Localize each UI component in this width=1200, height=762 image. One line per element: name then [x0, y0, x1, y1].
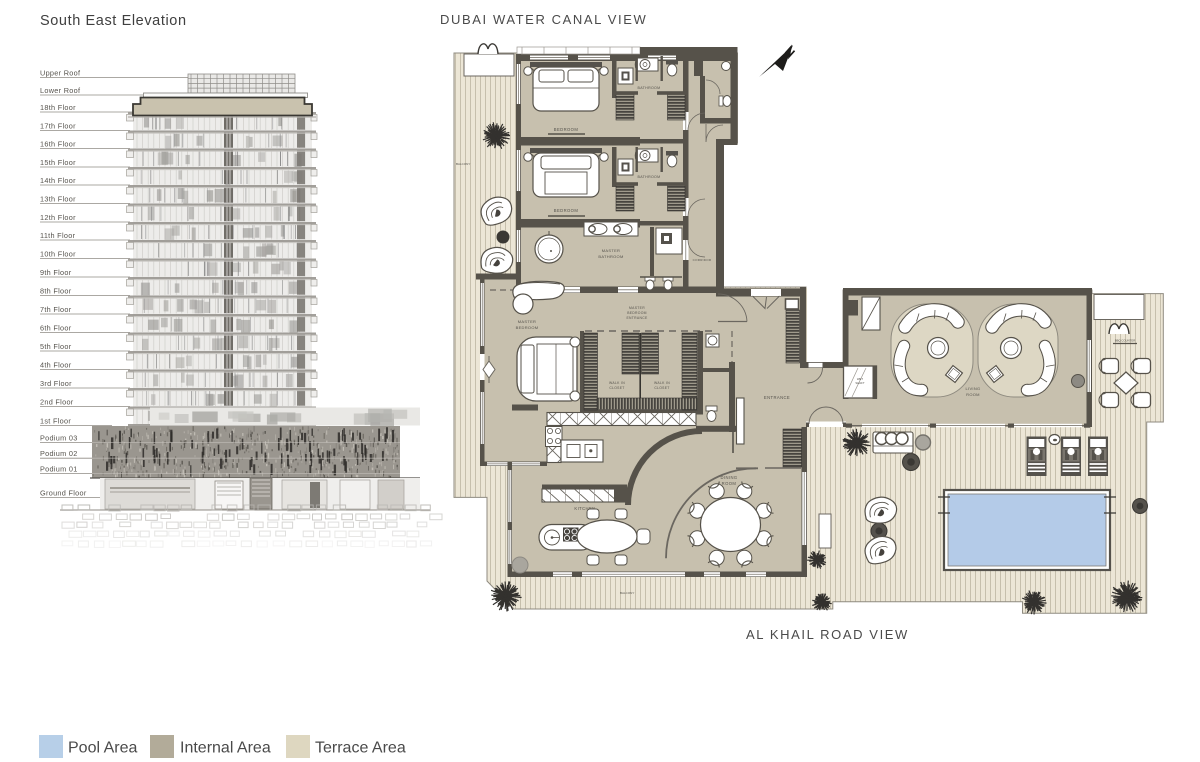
svg-text:ENTRANCE: ENTRANCE [764, 395, 790, 400]
svg-text:AL KHAIL ROAD VIEW: AL KHAIL ROAD VIEW [746, 627, 909, 642]
svg-text:BEDROOM: BEDROOM [627, 311, 647, 315]
svg-text:BBQ COUNTER: BBQ COUNTER [1115, 339, 1136, 343]
svg-text:BEDROOM: BEDROOM [516, 325, 539, 330]
svg-text:15th Floor: 15th Floor [40, 158, 76, 167]
svg-text:12th Floor: 12th Floor [40, 213, 76, 222]
svg-text:Terrace Area: Terrace Area [315, 740, 406, 757]
svg-text:LIVING: LIVING [966, 386, 981, 391]
svg-text:CORRIDOR: CORRIDOR [693, 258, 712, 262]
svg-text:DUBAI WATER CANAL VIEW: DUBAI WATER CANAL VIEW [440, 12, 647, 27]
svg-text:DINING: DINING [720, 475, 737, 480]
svg-text:13th Floor: 13th Floor [40, 194, 76, 203]
svg-text:3rd Floor: 3rd Floor [40, 379, 72, 388]
svg-text:MASTER: MASTER [629, 306, 645, 310]
svg-text:CLOSET: CLOSET [654, 386, 669, 390]
svg-text:MASTER: MASTER [602, 248, 620, 253]
svg-text:BEDROOM: BEDROOM [554, 127, 579, 132]
svg-text:4th Floor: 4th Floor [40, 360, 72, 369]
svg-text:Internal Area: Internal Area [180, 740, 271, 757]
svg-text:Podium 01: Podium 01 [40, 464, 78, 473]
svg-text:WALK IN: WALK IN [654, 381, 670, 385]
svg-text:South East Elevation: South East Elevation [40, 13, 187, 29]
svg-text:ROOM: ROOM [966, 392, 980, 397]
svg-text:9th Floor: 9th Floor [40, 268, 72, 277]
svg-text:BATHROOM: BATHROOM [598, 254, 623, 259]
svg-text:Lower Roof: Lower Roof [40, 86, 81, 95]
svg-text:17th Floor: 17th Floor [40, 121, 76, 130]
svg-text:CLOSET: CLOSET [609, 386, 624, 390]
svg-text:MASTER: MASTER [518, 319, 536, 324]
svg-text:14th Floor: 14th Floor [40, 176, 76, 185]
svg-text:BALCONY: BALCONY [456, 162, 470, 166]
svg-text:18th Floor: 18th Floor [40, 103, 76, 112]
svg-text:1st Floor: 1st Floor [40, 416, 71, 425]
svg-text:Upper Roof: Upper Roof [40, 68, 81, 77]
svg-text:8th Floor: 8th Floor [40, 286, 72, 295]
svg-text:WALK IN: WALK IN [609, 381, 625, 385]
svg-text:BALCONY: BALCONY [620, 591, 634, 595]
svg-text:6th Floor: 6th Floor [40, 323, 72, 332]
svg-text:BATHROOM: BATHROOM [638, 86, 661, 90]
svg-text:10th Floor: 10th Floor [40, 249, 76, 258]
svg-text:16th Floor: 16th Floor [40, 139, 76, 148]
svg-text:7th Floor: 7th Floor [40, 305, 72, 314]
svg-text:2nd Floor: 2nd Floor [40, 397, 74, 406]
svg-text:5th Floor: 5th Floor [40, 342, 72, 351]
svg-text:BATHROOM: BATHROOM [638, 175, 661, 179]
svg-text:Ground Floor: Ground Floor [40, 488, 87, 497]
svg-text:BEDROOM: BEDROOM [554, 208, 579, 213]
svg-text:Podium 03: Podium 03 [40, 433, 78, 442]
svg-text:ROOM: ROOM [722, 481, 737, 486]
svg-text:Podium 02: Podium 02 [40, 449, 78, 458]
svg-text:ENTRANCE: ENTRANCE [626, 316, 647, 320]
svg-text:Pool Area: Pool Area [68, 740, 137, 757]
svg-text:11th Floor: 11th Floor [40, 231, 76, 240]
svg-text:SHAFT: SHAFT [855, 381, 864, 385]
